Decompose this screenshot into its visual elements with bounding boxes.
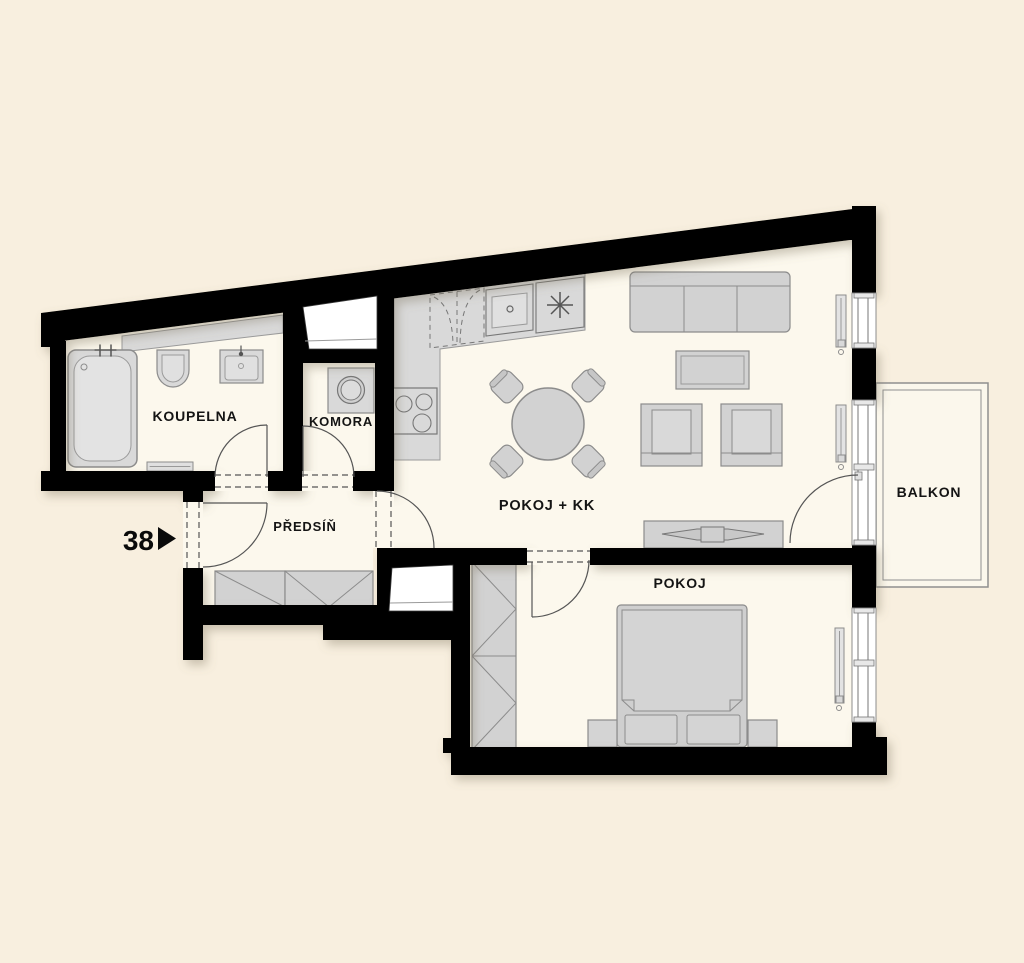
- bathroom-radiator: [147, 462, 193, 471]
- coffee-table: [676, 351, 749, 389]
- window: [852, 293, 876, 348]
- kitchen-sink: [486, 284, 533, 336]
- floor-plan: KOUPELNA KOMORA PŘEDSÍŇ POKOJ + KK POKOJ…: [0, 0, 1024, 963]
- room-label-predsin: PŘEDSÍŇ: [273, 519, 336, 534]
- room-label-pokoj: POKOJ: [653, 575, 706, 591]
- armchair: [721, 404, 782, 466]
- nightstand: [588, 720, 617, 747]
- bed: [617, 605, 747, 747]
- hob-symbol: [536, 277, 584, 333]
- radiator: [835, 628, 844, 711]
- bedroom-wardrobe: [472, 562, 516, 750]
- room-label-balkon: BALKON: [897, 484, 962, 500]
- room-label-pokoj-kk: POKOJ + KK: [499, 498, 595, 514]
- nightstand: [748, 720, 777, 747]
- unit-number: 38: [123, 525, 154, 556]
- tv-cabinet: [644, 521, 783, 548]
- radiator: [836, 295, 846, 355]
- floor-plan-page: KOUPELNA KOMORA PŘEDSÍŇ POKOJ + KK POKOJ…: [0, 0, 1024, 963]
- bathroom-sink: [220, 346, 263, 383]
- stove: [391, 388, 437, 434]
- dining-table: [512, 388, 584, 460]
- room-label-komora: KOMORA: [309, 414, 373, 429]
- washing-machine: [328, 368, 374, 413]
- entrance-arrow-icon: [158, 527, 176, 550]
- wall-niche: [389, 565, 453, 611]
- bathtub: [68, 345, 137, 467]
- window: [852, 608, 876, 722]
- unit-marker: 38: [123, 525, 176, 556]
- balcony-door-window: [852, 400, 876, 545]
- radiator: [836, 405, 846, 470]
- hallway-wardrobe: [215, 571, 373, 607]
- toilet: [157, 350, 189, 387]
- room-label-koupelna: KOUPELNA: [153, 408, 238, 424]
- armchair: [641, 404, 702, 466]
- sofa: [630, 272, 790, 332]
